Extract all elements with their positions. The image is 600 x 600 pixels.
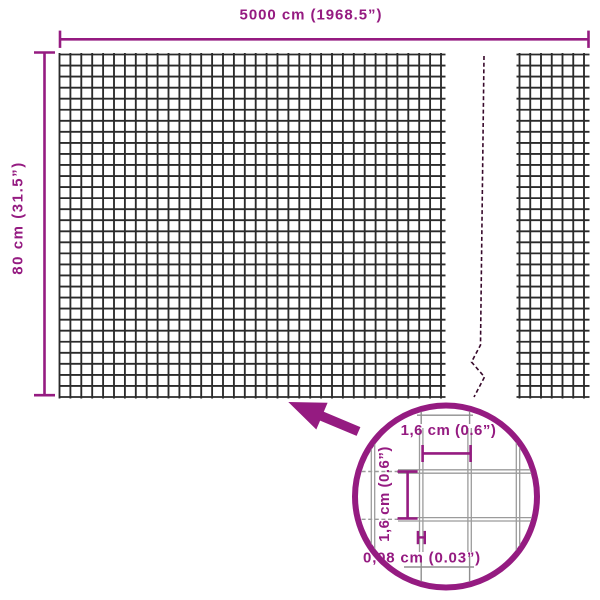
svg-text:1,6 cm (0.6”): 1,6 cm (0.6”) bbox=[401, 422, 497, 439]
svg-text:1,6 cm (0.6”): 1,6 cm (0.6”) bbox=[376, 446, 393, 542]
svg-text:5000 cm (1968.5”): 5000 cm (1968.5”) bbox=[240, 7, 383, 24]
svg-text:80 cm (31.5”): 80 cm (31.5”) bbox=[9, 161, 26, 275]
svg-text:0,08 cm (0.03”): 0,08 cm (0.03”) bbox=[363, 550, 481, 567]
